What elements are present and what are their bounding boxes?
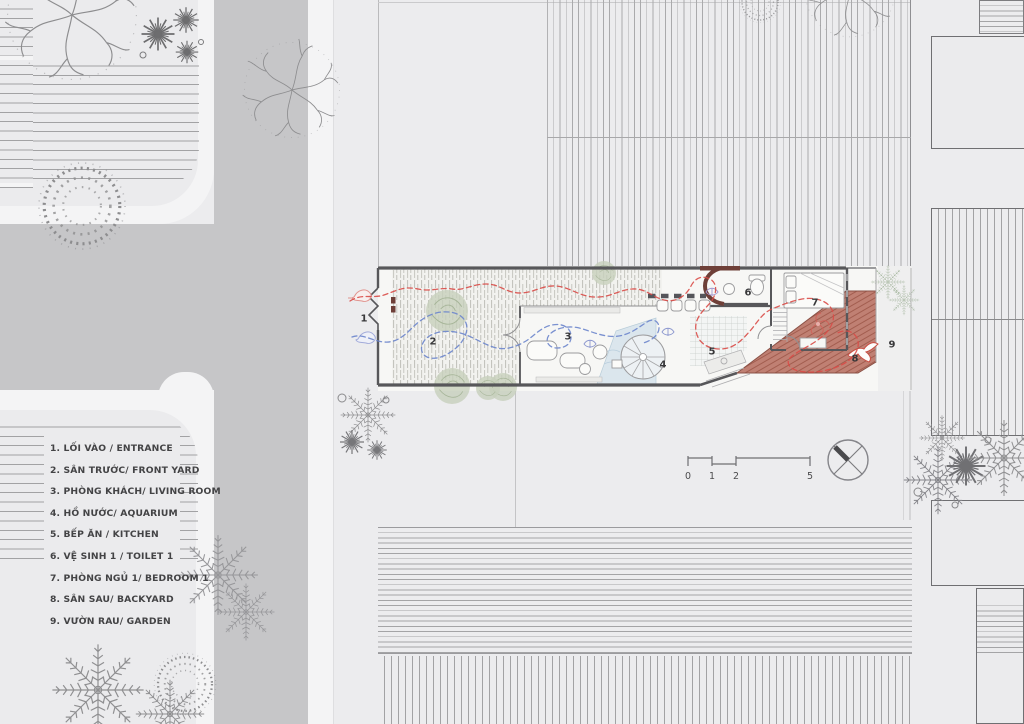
edge-parcel-gap-2 bbox=[0, 183, 33, 187]
legend-item-kitchen: 5. BẾP ĂN / KITCHEN bbox=[50, 529, 221, 540]
roof-band-horizontal bbox=[378, 527, 912, 654]
legend-item-aquarium: 4. HỒ NƯỚC/ AQUARIUM bbox=[50, 508, 221, 519]
edge-parcel-gap-1 bbox=[0, 56, 33, 60]
legend-item-toilet: 6. VỆ SINH 1 / TOILET 1 bbox=[50, 551, 221, 562]
building-right-4-hatch bbox=[977, 601, 1023, 657]
horizontal-road bbox=[0, 224, 214, 390]
legend-item-backyard: 8. SÂN SAU/ BACKYARD bbox=[50, 594, 221, 605]
scale-tick-0: 0 bbox=[685, 471, 691, 482]
legend-item-front-yard: 2. SÂN TRƯỚC/ FRONT YARD bbox=[50, 465, 221, 476]
garden-strip bbox=[878, 266, 912, 391]
legend-item-bedroom: 7. PHÒNG NGỦ 1/ BEDROOM 1 bbox=[50, 573, 221, 584]
legend: 1. LỐI VÀO / ENTRANCE 2. SÂN TRƯỚC/ FRON… bbox=[50, 443, 221, 637]
scale-tick-1: 1 bbox=[709, 471, 715, 482]
sidewalk-right bbox=[308, 0, 334, 724]
parcel-line-left bbox=[378, 0, 379, 268]
vertical-road bbox=[214, 0, 308, 724]
roof-band-vertical bbox=[378, 656, 912, 724]
legend-item-garden: 9. VƯỜN RAU/ GARDEN bbox=[50, 616, 221, 627]
building-right-1 bbox=[931, 36, 1024, 149]
roof-strip-right-1 bbox=[898, 390, 911, 520]
edge-parcel-hatch bbox=[0, 0, 33, 188]
north-arrow-icon bbox=[828, 440, 868, 480]
scale-tick-5: 5 bbox=[807, 471, 813, 482]
room-label-entrance: 1 bbox=[361, 314, 368, 325]
house-floor bbox=[378, 266, 878, 391]
building-right-2 bbox=[931, 208, 1024, 436]
roof-strip-right-2 bbox=[898, 528, 909, 654]
building-right-2-divider bbox=[932, 319, 1024, 320]
red-flower-sketch bbox=[348, 290, 371, 301]
legend-item-entrance: 1. LỐI VÀO / ENTRANCE bbox=[50, 443, 221, 454]
scale-bar: 0 1 2 5 bbox=[685, 456, 813, 482]
neighbor-roof bbox=[547, 0, 911, 268]
building-right-top bbox=[979, 0, 1024, 34]
site-plan-canvas: 1 2 3 4 5 6 7 8 9 0 1 2 5 bbox=[0, 0, 1024, 724]
building-right-3 bbox=[931, 500, 1024, 586]
below-house-divider bbox=[515, 390, 516, 528]
legend-item-living-room: 3. PHÒNG KHÁCH/ LIVING ROOM bbox=[50, 486, 221, 497]
parcel-top-left-hatch bbox=[33, 57, 199, 187]
building-right-4 bbox=[976, 588, 1024, 724]
neighbor-roof-divider bbox=[547, 137, 911, 138]
scale-tick-2: 2 bbox=[733, 471, 739, 482]
blue-flower-sketch bbox=[356, 332, 375, 343]
